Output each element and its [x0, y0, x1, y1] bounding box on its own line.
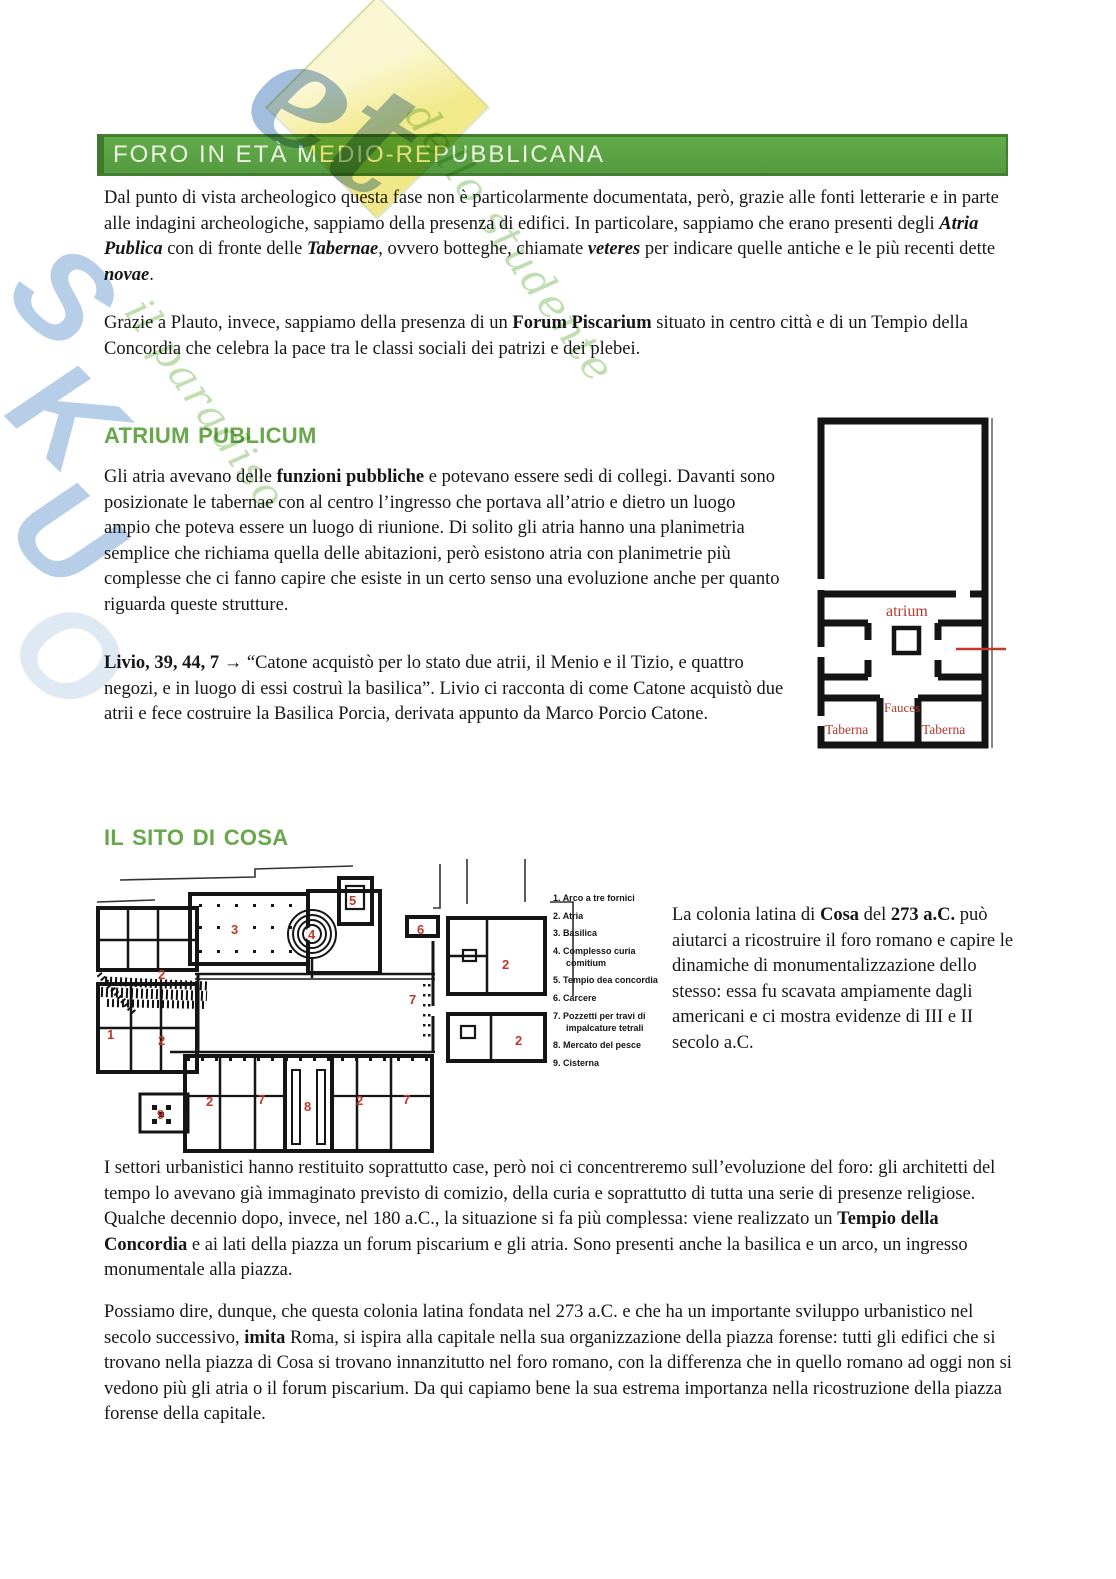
- legend-item: 3. Basilica: [553, 928, 675, 940]
- atrium-paragraph-1: Gli atria avevano delle funzioni pubblic…: [104, 465, 780, 619]
- svg-text:2: 2: [356, 1093, 363, 1108]
- legend-item: 7. Pozzetti per travi di impalcature tet…: [553, 1011, 675, 1034]
- cosa-plan-drawing: 1 2 2 3 4 5 6 7 2 2 2 7 8 2 7 9: [95, 856, 575, 1156]
- svg-text:2: 2: [158, 1033, 165, 1048]
- watermark-brand-letters: S K U O: [18, 242, 118, 714]
- cosa-plan-figure: 1 2 2 3 4 5 6 7 2 2 2 7 8 2 7 9: [95, 856, 575, 1161]
- legend-item: 9. Cisterna: [553, 1058, 675, 1070]
- atrium-plan-drawing: atrium Fauces Taberna Taberna: [816, 416, 1008, 750]
- arch-rubble-band: [99, 974, 207, 1014]
- cosa-section-heading: IL SITO DI COSA: [104, 825, 289, 851]
- svg-text:2: 2: [515, 1033, 522, 1048]
- svg-text:7: 7: [409, 992, 416, 1007]
- legend-item: 8. Mercato del pesce: [553, 1040, 675, 1052]
- comitium-enclosure: [308, 891, 380, 973]
- fauces-label: Fauces: [884, 700, 920, 715]
- svg-text:2: 2: [502, 957, 509, 972]
- svg-text:6: 6: [417, 922, 424, 937]
- legend-item: 2. Atria: [553, 911, 675, 923]
- legend-item: 4. Complesso curia comitium: [553, 946, 675, 969]
- svg-text:2: 2: [158, 967, 165, 982]
- legend-item: 1. Arco a tre fornici: [553, 893, 675, 905]
- svg-text:9: 9: [157, 1107, 164, 1122]
- svg-text:7: 7: [403, 1092, 410, 1107]
- atrium-paragraph-2: Livio, 39, 44, 7 → “Catone acquistò per …: [104, 651, 794, 728]
- intro-paragraph-1: Dal punto di vista archeologico questa f…: [104, 186, 1012, 288]
- cosa-side-paragraph: La colonia latina di Cosa del 273 a.C. p…: [672, 903, 1018, 1057]
- page-title: FORO IN ETÀ MEDIO-REPUBBLICANA: [113, 141, 605, 168]
- closing-paragraph-2: Possiamo dire, dunque, che questa coloni…: [104, 1300, 1019, 1428]
- intro-paragraph-2: Grazie a Plauto, invece, sappiamo della …: [104, 311, 1012, 362]
- taberna-right-label: Taberna: [922, 722, 965, 737]
- forum-plaza: [170, 941, 435, 1052]
- svg-text:4: 4: [308, 927, 316, 942]
- svg-text:8: 8: [304, 1099, 311, 1114]
- legend-item: 5. Tempio dea concordia: [553, 975, 675, 987]
- atrium-room-label: atrium: [886, 603, 928, 620]
- document-page: et S K U O il paradiso dello studente FO…: [0, 0, 1116, 1579]
- taberna-left-label: Taberna: [825, 722, 868, 737]
- atrium-section-heading: ATRIUM PUBLICUM: [104, 423, 317, 449]
- legend-item: 6. Carcere: [553, 993, 675, 1005]
- svg-text:1: 1: [107, 1027, 114, 1042]
- cosa-plan-legend: 1. Arco a tre fornici 2. Atria 3. Basili…: [553, 893, 675, 1076]
- comitium-circles: [288, 910, 336, 978]
- svg-text:5: 5: [349, 893, 356, 908]
- closing-paragraph-1: I settori urbanistici hanno restituito s…: [104, 1156, 1019, 1284]
- svg-text:7: 7: [258, 1092, 265, 1107]
- plan-markers: 1 2 2 3 4 5 6 7 2 2 2 7 8 2 7 9: [107, 893, 522, 1122]
- section-title-bar: FORO IN ETÀ MEDIO-REPUBBLICANA: [97, 134, 1008, 176]
- svg-text:3: 3: [231, 922, 238, 937]
- atrium-plan-figure: atrium Fauces Taberna Taberna: [816, 416, 1008, 755]
- svg-text:2: 2: [206, 1094, 213, 1109]
- impluvium: [894, 628, 919, 653]
- basilica-columns: [199, 904, 292, 953]
